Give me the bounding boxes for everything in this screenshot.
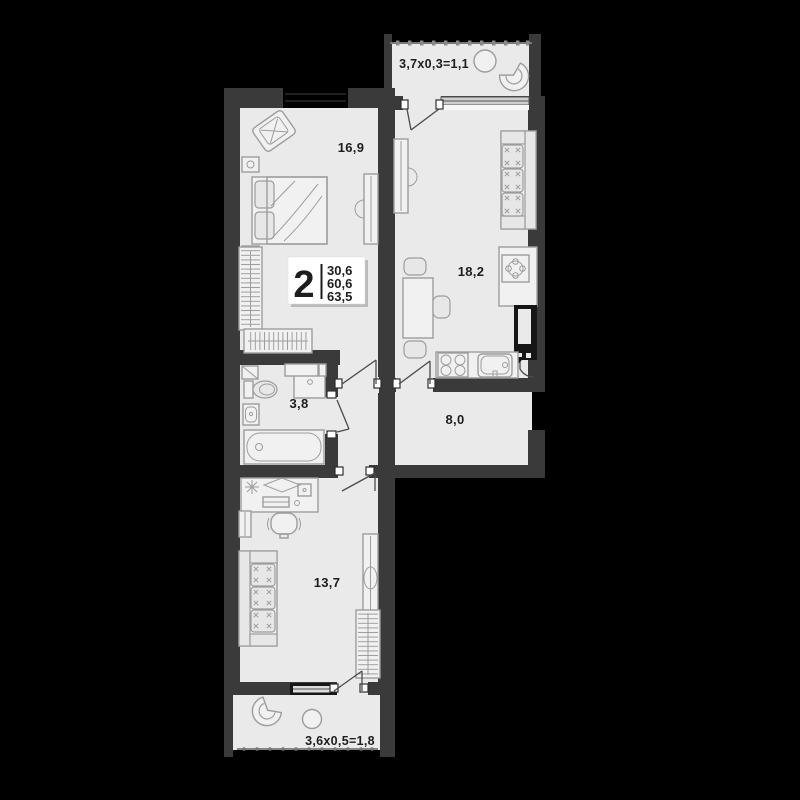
washbasin (243, 404, 259, 425)
desk (241, 478, 318, 512)
nightstand (242, 157, 259, 172)
wardrobe-hangers (244, 329, 312, 353)
sofa (239, 551, 277, 646)
counter (285, 364, 326, 376)
round-table (303, 710, 322, 729)
sofa (501, 131, 536, 229)
kitchen-area-label: 18,2 (458, 264, 485, 279)
washing-machine (499, 247, 537, 306)
bedroom-window (283, 88, 348, 108)
balcony-bottom-dim-label: 3,6х0,5=1,8 (305, 734, 375, 748)
mirror-wardrobe (363, 534, 378, 612)
toilet (244, 381, 277, 398)
floor-plan: 3,7х0,3=1,1 16,9 18,2 3,8 8,0 13,7 3,6х0… (0, 0, 800, 800)
bookshelf (239, 511, 251, 537)
round-table (474, 50, 496, 72)
chair (404, 341, 426, 358)
rooms-count: 2 (293, 264, 314, 306)
balcony-top-dim-label: 3,7х0,3=1,1 (399, 57, 469, 71)
info-badge: 2 30,6 60,6 63,5 (288, 257, 368, 307)
wardrobe-hangers (239, 247, 262, 330)
hallway-area-label: 8,0 (446, 412, 465, 427)
mirror-cabinet (294, 375, 325, 398)
kitchen-window (441, 97, 529, 110)
chair (433, 296, 450, 318)
kitchen-counter (436, 352, 518, 378)
desk-lamp (245, 480, 259, 494)
floor-plan-canvas: 3,7х0,3=1,1 16,9 18,2 3,8 8,0 13,7 3,6х0… (0, 0, 800, 800)
bathtub (244, 430, 324, 464)
bathroom-area-label: 3,8 (290, 396, 309, 411)
area-total: 63,5 (327, 289, 352, 304)
double-bed (252, 177, 327, 244)
dresser-hatched (356, 610, 380, 678)
room-area-label: 13,7 (314, 575, 341, 590)
chair (404, 258, 426, 275)
shelf (242, 366, 258, 379)
hallway-floor (332, 380, 532, 476)
bedroom-area-label: 16,9 (338, 140, 365, 155)
